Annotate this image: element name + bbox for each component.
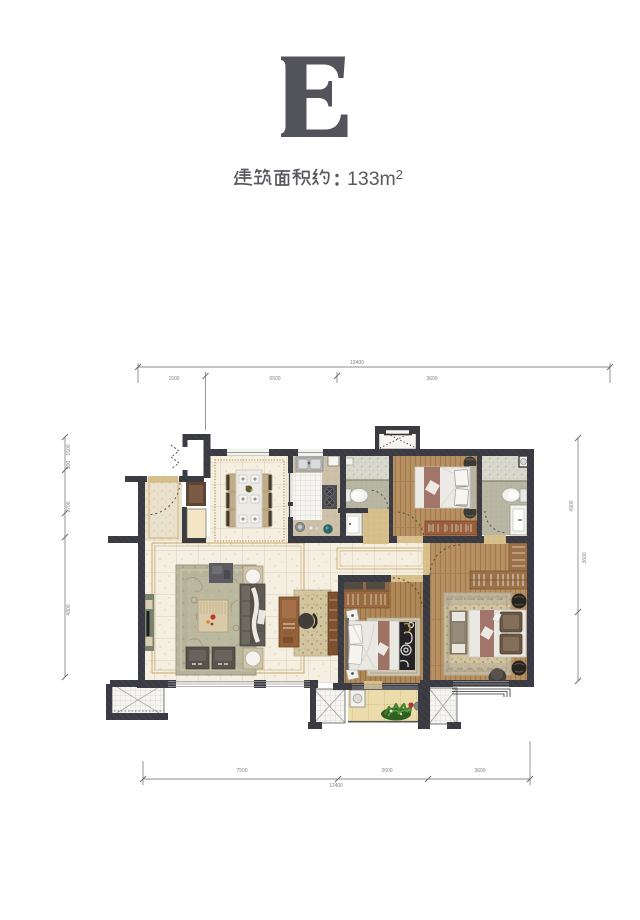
svg-text:1500: 1500 <box>168 376 179 382</box>
svg-text:6500: 6500 <box>269 376 280 382</box>
svg-text:2600: 2600 <box>381 768 392 774</box>
svg-text:3600: 3600 <box>582 552 588 563</box>
svg-text:4900: 4900 <box>569 500 575 511</box>
svg-text:7500: 7500 <box>236 768 247 774</box>
svg-text:900: 900 <box>66 461 72 470</box>
svg-text:1500: 1500 <box>66 444 72 455</box>
svg-text:12400: 12400 <box>329 783 343 789</box>
svg-text:3600: 3600 <box>474 768 485 774</box>
svg-text:133m2: 133m2 <box>347 167 403 190</box>
svg-text:12400: 12400 <box>350 360 364 366</box>
svg-text:2700: 2700 <box>66 501 72 512</box>
svg-text:3600: 3600 <box>426 376 437 382</box>
svg-text:4800: 4800 <box>66 604 72 615</box>
